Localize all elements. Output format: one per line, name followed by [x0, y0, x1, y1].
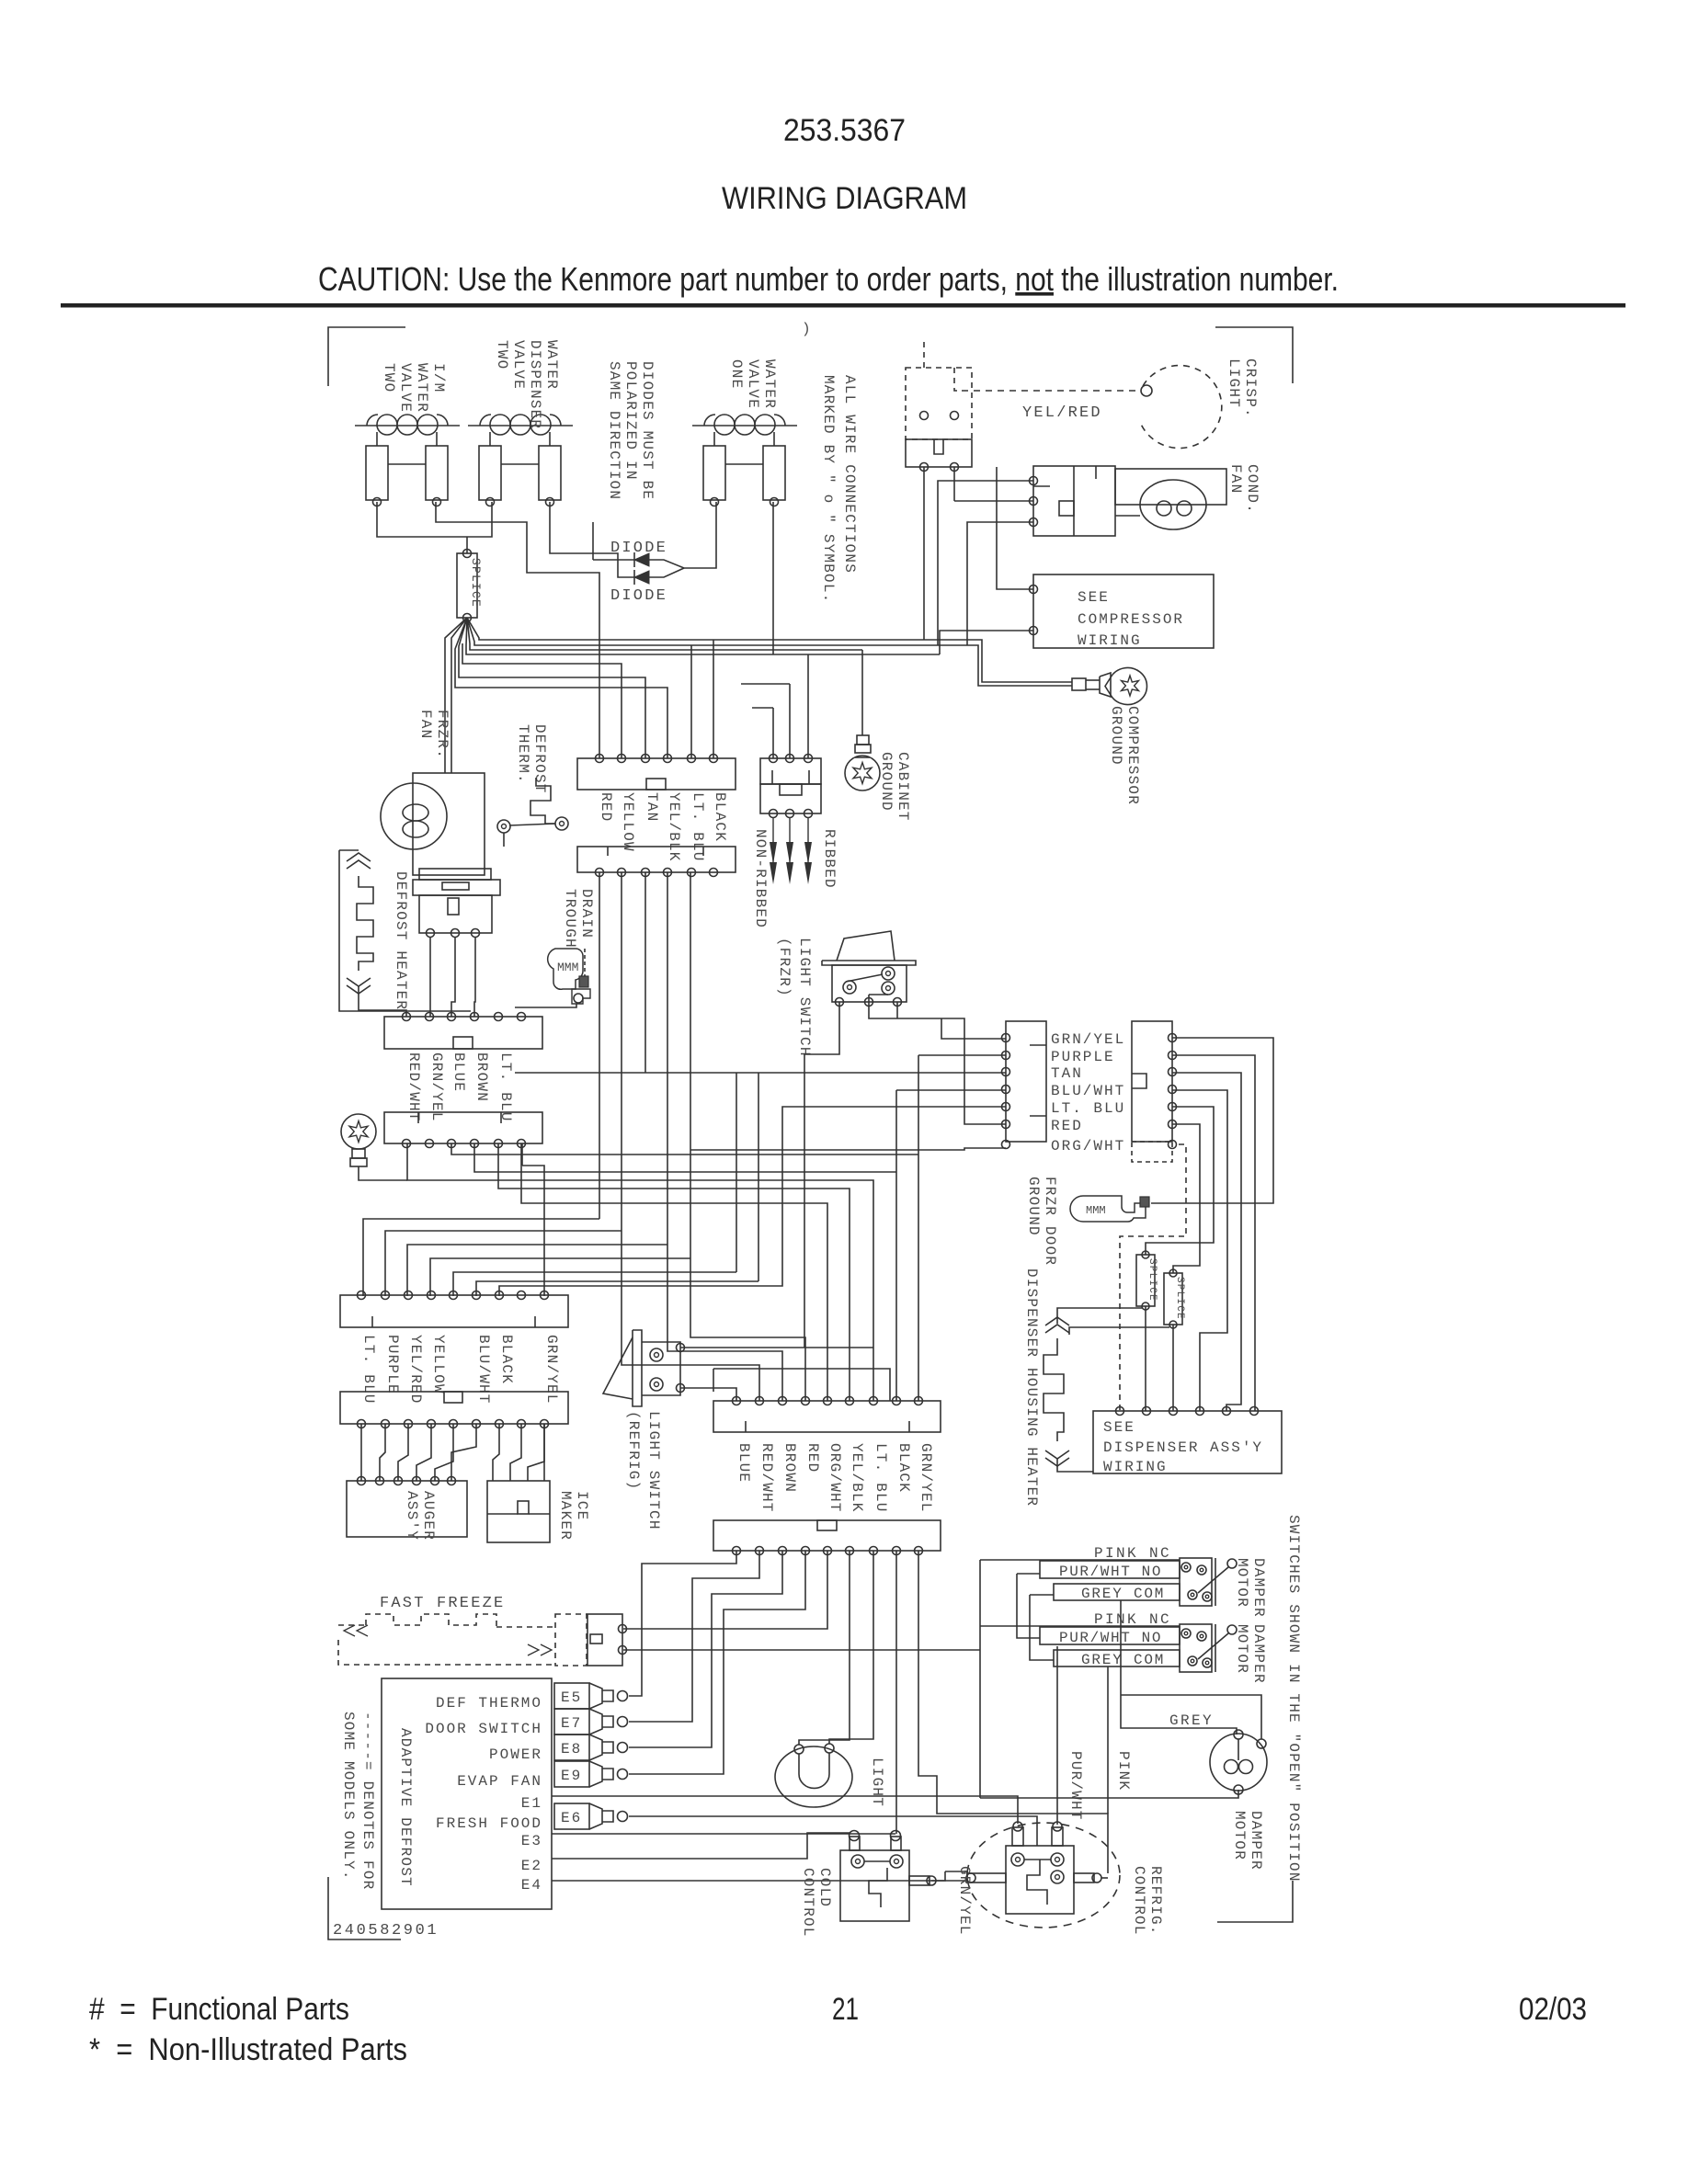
svg-text:RED: RED	[804, 1443, 821, 1473]
svg-text:): )	[802, 321, 812, 337]
svg-text:ASS'Y: ASS'Y	[404, 1491, 420, 1541]
svg-text:TWO: TWO	[381, 363, 397, 392]
svg-text:MMM: MMM	[557, 961, 578, 974]
svg-text:GROUND: GROUND	[878, 752, 895, 812]
svg-text:GRN/YEL: GRN/YEL	[1051, 1031, 1125, 1048]
svg-text:240582901: 240582901	[333, 1922, 439, 1939]
svg-text:GRN/YEL: GRN/YEL	[956, 1866, 973, 1936]
svg-text:YEL/RED: YEL/RED	[407, 1335, 424, 1405]
svg-text:WIRING: WIRING	[1078, 632, 1142, 649]
svg-text:CRISP.: CRISP.	[1242, 358, 1259, 418]
svg-text:GRN/YEL: GRN/YEL	[918, 1443, 934, 1513]
svg-text:TAN: TAN	[1051, 1065, 1083, 1082]
svg-text:E5: E5	[561, 1689, 582, 1706]
svg-text:LIGHT: LIGHT	[1226, 358, 1242, 408]
svg-text:AUGER: AUGER	[420, 1491, 437, 1541]
svg-text:NON-RIBBED: NON-RIBBED	[752, 829, 769, 928]
svg-text:PUR/WHT NO: PUR/WHT NO	[1059, 1630, 1162, 1646]
svg-text:RED/WHT: RED/WHT	[758, 1443, 775, 1513]
svg-text:DIODES MUST BE: DIODES MUST BE	[639, 361, 656, 500]
svg-text:BLUE: BLUE	[451, 1052, 467, 1092]
svg-text:PURPLE: PURPLE	[1051, 1049, 1115, 1065]
svg-text:FAST FREEZE: FAST FREEZE	[380, 1595, 505, 1612]
svg-text:E3: E3	[521, 1833, 542, 1849]
svg-text:SEE: SEE	[1103, 1419, 1135, 1436]
svg-text:COND.: COND.	[1244, 464, 1260, 514]
svg-text:WATER: WATER	[543, 340, 560, 390]
svg-text:(FRZR): (FRZR)	[776, 938, 793, 997]
svg-text:RED: RED	[598, 792, 614, 822]
svg-text:E8: E8	[561, 1741, 582, 1757]
svg-text:PINK: PINK	[1115, 1751, 1132, 1791]
svg-text:YELLOW: YELLOW	[620, 792, 636, 852]
svg-text:E9: E9	[561, 1768, 582, 1784]
svg-text:VALVE: VALVE	[510, 340, 527, 390]
svg-text:FAN: FAN	[1227, 464, 1244, 494]
svg-text:RIBBED: RIBBED	[821, 829, 838, 889]
svg-text:MOTOR: MOTOR	[1231, 1811, 1248, 1860]
svg-text:FRZR DOOR: FRZR DOOR	[1042, 1177, 1058, 1266]
svg-text:SOME MODELS ONLY.: SOME MODELS ONLY.	[340, 1712, 357, 1881]
svg-text:ONE: ONE	[728, 359, 745, 389]
svg-text:GREY COM: GREY COM	[1081, 1586, 1165, 1602]
svg-text:PUR/WHT: PUR/WHT	[1067, 1751, 1084, 1821]
svg-text:ALL WIRE CONNECTIONS: ALL WIRE CONNECTIONS	[841, 375, 858, 574]
svg-text:DAMPER: DAMPER	[1248, 1811, 1264, 1871]
svg-text:DAMPER: DAMPER	[1250, 1624, 1267, 1684]
svg-text:LT. BLU: LT. BLU	[1051, 1100, 1125, 1117]
svg-text:SPLICE: SPLICE	[1174, 1277, 1185, 1320]
svg-text:E4: E4	[521, 1877, 542, 1894]
svg-text:BLU/WHT: BLU/WHT	[1051, 1083, 1125, 1099]
svg-text:GRN/YEL: GRN/YEL	[543, 1335, 560, 1405]
svg-text:PUR/WHT NO: PUR/WHT NO	[1059, 1564, 1162, 1580]
svg-text:YEL/BLK: YEL/BLK	[849, 1443, 865, 1513]
svg-text:CABINET: CABINET	[895, 752, 911, 822]
svg-text:DRAIN: DRAIN	[578, 889, 595, 938]
svg-text:253.5367: 253.5367	[783, 113, 906, 148]
svg-text:DAMPER: DAMPER	[1250, 1558, 1267, 1618]
svg-text:POWER: POWER	[489, 1746, 542, 1763]
svg-text:FAN: FAN	[417, 710, 434, 739]
svg-text:DEFROST: DEFROST	[531, 724, 548, 794]
svg-text:THERM.: THERM.	[515, 724, 531, 784]
svg-text:DEF THERMO: DEF THERMO	[436, 1695, 542, 1712]
svg-text:E7: E7	[561, 1715, 582, 1732]
svg-text:RED: RED	[1051, 1118, 1083, 1134]
svg-text:# = Functional Parts: # = Functional Parts	[89, 1992, 349, 2027]
svg-text:DISPENSER: DISPENSER	[527, 340, 543, 429]
svg-text:E1: E1	[521, 1795, 542, 1812]
svg-text:MAKER: MAKER	[557, 1491, 574, 1541]
svg-text:BLACK: BLACK	[498, 1335, 515, 1384]
svg-text:SEE: SEE	[1078, 589, 1110, 606]
svg-text:DIODE: DIODE	[610, 540, 667, 557]
svg-text:VALVE: VALVE	[397, 363, 414, 413]
svg-text:BLU/WHT: BLU/WHT	[475, 1335, 492, 1405]
svg-text:FRESH FOOD: FRESH FOOD	[436, 1815, 542, 1832]
svg-text:SPLICE: SPLICE	[1146, 1258, 1158, 1302]
svg-text:* = Non-Illustrated Parts: * = Non-Illustrated Parts	[89, 2032, 407, 2067]
svg-text:E2: E2	[521, 1858, 542, 1874]
svg-text:GREY: GREY	[1169, 1712, 1214, 1729]
svg-text:LT. BLU: LT. BLU	[873, 1443, 889, 1513]
svg-text:MARKED BY " o " SYMBOL.: MARKED BY " o " SYMBOL.	[820, 375, 837, 603]
svg-text:LIGHT SWITCH: LIGHT SWITCH	[796, 938, 813, 1057]
svg-text:02/03: 02/03	[1519, 1992, 1587, 2027]
svg-text:YEL/BLK: YEL/BLK	[666, 792, 682, 862]
svg-text:COLD: COLD	[816, 1868, 833, 1907]
svg-text:LT. BLU: LT. BLU	[360, 1335, 377, 1405]
svg-text:YEL/RED: YEL/RED	[1022, 404, 1102, 422]
svg-text:DEFROST HEATER: DEFROST HEATER	[393, 871, 409, 1010]
svg-text:LIGHT SWITCH: LIGHT SWITCH	[645, 1411, 662, 1530]
svg-text:(REFRIG): (REFRIG)	[625, 1411, 642, 1490]
svg-text:SWITCHES SHOWN IN THE "OPEN" P: SWITCHES SHOWN IN THE "OPEN" POSITION	[1285, 1515, 1302, 1883]
svg-text:WIRING DIAGRAM: WIRING DIAGRAM	[722, 181, 967, 216]
svg-text:DOOR SWITCH: DOOR SWITCH	[425, 1721, 542, 1737]
svg-text:WIRING: WIRING	[1103, 1459, 1168, 1475]
svg-text:COMPRESSOR: COMPRESSOR	[1078, 611, 1184, 628]
svg-text:ADAPTIVE DEFROST: ADAPTIVE DEFROST	[397, 1728, 414, 1887]
svg-text:DISPENSER HOUSING HEATER: DISPENSER HOUSING HEATER	[1023, 1268, 1040, 1507]
svg-text:SAME DIRECTION: SAME DIRECTION	[606, 361, 622, 500]
svg-text:SPLICE: SPLICE	[469, 558, 483, 608]
svg-text:CAUTION: Use the Kenmore part: CAUTION: Use the Kenmore part number to …	[318, 260, 1339, 298]
svg-text:21: 21	[832, 1992, 859, 2027]
svg-text:GROUND: GROUND	[1108, 706, 1124, 766]
svg-text:EVAP FAN: EVAP FAN	[457, 1773, 542, 1790]
svg-text:DIODE: DIODE	[610, 587, 667, 605]
svg-text:TWO: TWO	[494, 340, 510, 370]
svg-text:POLARIZED IN: POLARIZED IN	[622, 361, 639, 481]
svg-text:REFRIG.: REFRIG.	[1147, 1866, 1164, 1936]
svg-text:BLUE: BLUE	[736, 1443, 752, 1483]
svg-text:COMPRESSOR: COMPRESSOR	[1124, 706, 1141, 805]
svg-text:ICE: ICE	[574, 1491, 590, 1520]
svg-text:BLACK: BLACK	[712, 792, 728, 842]
svg-text:-----= DENOTES FOR: -----= DENOTES FOR	[359, 1712, 376, 1890]
svg-text:TAN: TAN	[644, 792, 660, 822]
svg-text:MOTOR: MOTOR	[1234, 1624, 1250, 1674]
svg-text:LIGHT: LIGHT	[869, 1757, 885, 1807]
svg-text:PURPLE: PURPLE	[384, 1335, 401, 1394]
svg-text:BROWN: BROWN	[473, 1052, 490, 1102]
svg-text:WATER: WATER	[761, 359, 778, 409]
svg-text:BROWN: BROWN	[781, 1443, 798, 1493]
svg-text:VALVE: VALVE	[745, 359, 761, 409]
svg-text:ORG/WHT: ORG/WHT	[827, 1443, 843, 1513]
svg-text:I/M: I/M	[430, 363, 447, 392]
svg-text:BLACK: BLACK	[895, 1443, 912, 1493]
svg-text:TROUGH: TROUGH	[562, 889, 578, 949]
svg-text:DISPENSER ASS'Y: DISPENSER ASS'Y	[1103, 1439, 1263, 1456]
svg-text:YELLOW: YELLOW	[430, 1335, 447, 1394]
svg-text:MOTOR: MOTOR	[1234, 1558, 1250, 1608]
svg-text:MMM: MMM	[1086, 1204, 1106, 1217]
svg-text:FRZR.: FRZR.	[434, 710, 451, 759]
svg-text:CONTROL: CONTROL	[1131, 1866, 1147, 1936]
svg-text:CONTROL: CONTROL	[800, 1868, 816, 1938]
svg-text:GREY COM: GREY COM	[1081, 1652, 1165, 1668]
svg-text:WATER: WATER	[414, 363, 430, 413]
svg-text:GROUND: GROUND	[1025, 1177, 1042, 1236]
svg-text:ORG/WHT: ORG/WHT	[1051, 1138, 1125, 1155]
svg-text:E6: E6	[561, 1810, 582, 1826]
